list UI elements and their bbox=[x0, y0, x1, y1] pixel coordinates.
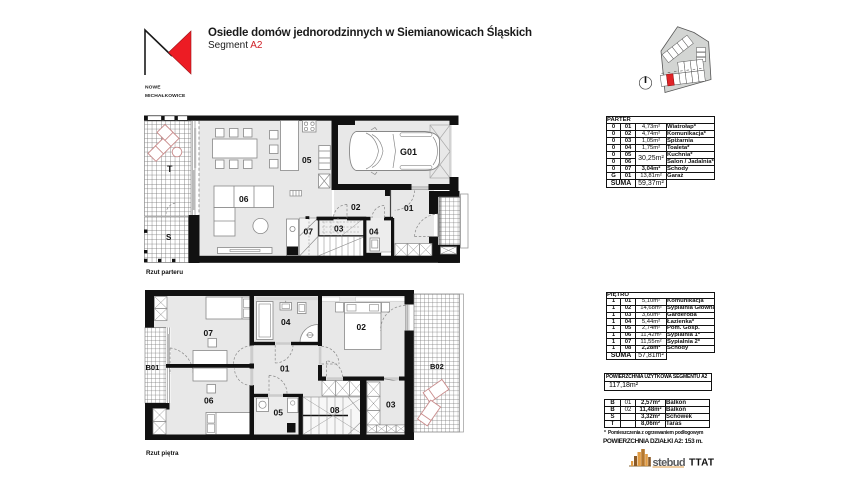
svg-text:08: 08 bbox=[330, 405, 340, 415]
svg-text:05: 05 bbox=[302, 155, 312, 165]
svg-text:07: 07 bbox=[304, 227, 314, 237]
svg-text:Rzut piętra: Rzut piętra bbox=[146, 450, 179, 457]
svg-text:04: 04 bbox=[369, 227, 379, 237]
svg-text:T: T bbox=[167, 164, 173, 174]
svg-text:02: 02 bbox=[351, 202, 361, 212]
svg-text:05: 05 bbox=[274, 408, 284, 418]
svg-text:01: 01 bbox=[280, 364, 290, 374]
svg-text:03: 03 bbox=[334, 224, 344, 234]
svg-text:G01: G01 bbox=[400, 147, 417, 157]
svg-text:02: 02 bbox=[357, 322, 367, 332]
svg-text:MICHAŁKOWICE: MICHAŁKOWICE bbox=[145, 93, 186, 99]
svg-text:06: 06 bbox=[204, 396, 214, 406]
svg-text:03: 03 bbox=[386, 400, 396, 410]
svg-text:B02: B02 bbox=[430, 362, 444, 371]
svg-text:NOWE: NOWE bbox=[145, 85, 161, 91]
svg-text:S: S bbox=[166, 233, 172, 242]
svg-text:TTAT: TTAT bbox=[689, 458, 714, 469]
svg-text:Rzut parteru: Rzut parteru bbox=[146, 269, 183, 276]
svg-text:07: 07 bbox=[204, 328, 214, 338]
svg-text:B01: B01 bbox=[146, 363, 160, 372]
svg-text:04: 04 bbox=[281, 317, 291, 327]
svg-text:06: 06 bbox=[239, 194, 249, 204]
